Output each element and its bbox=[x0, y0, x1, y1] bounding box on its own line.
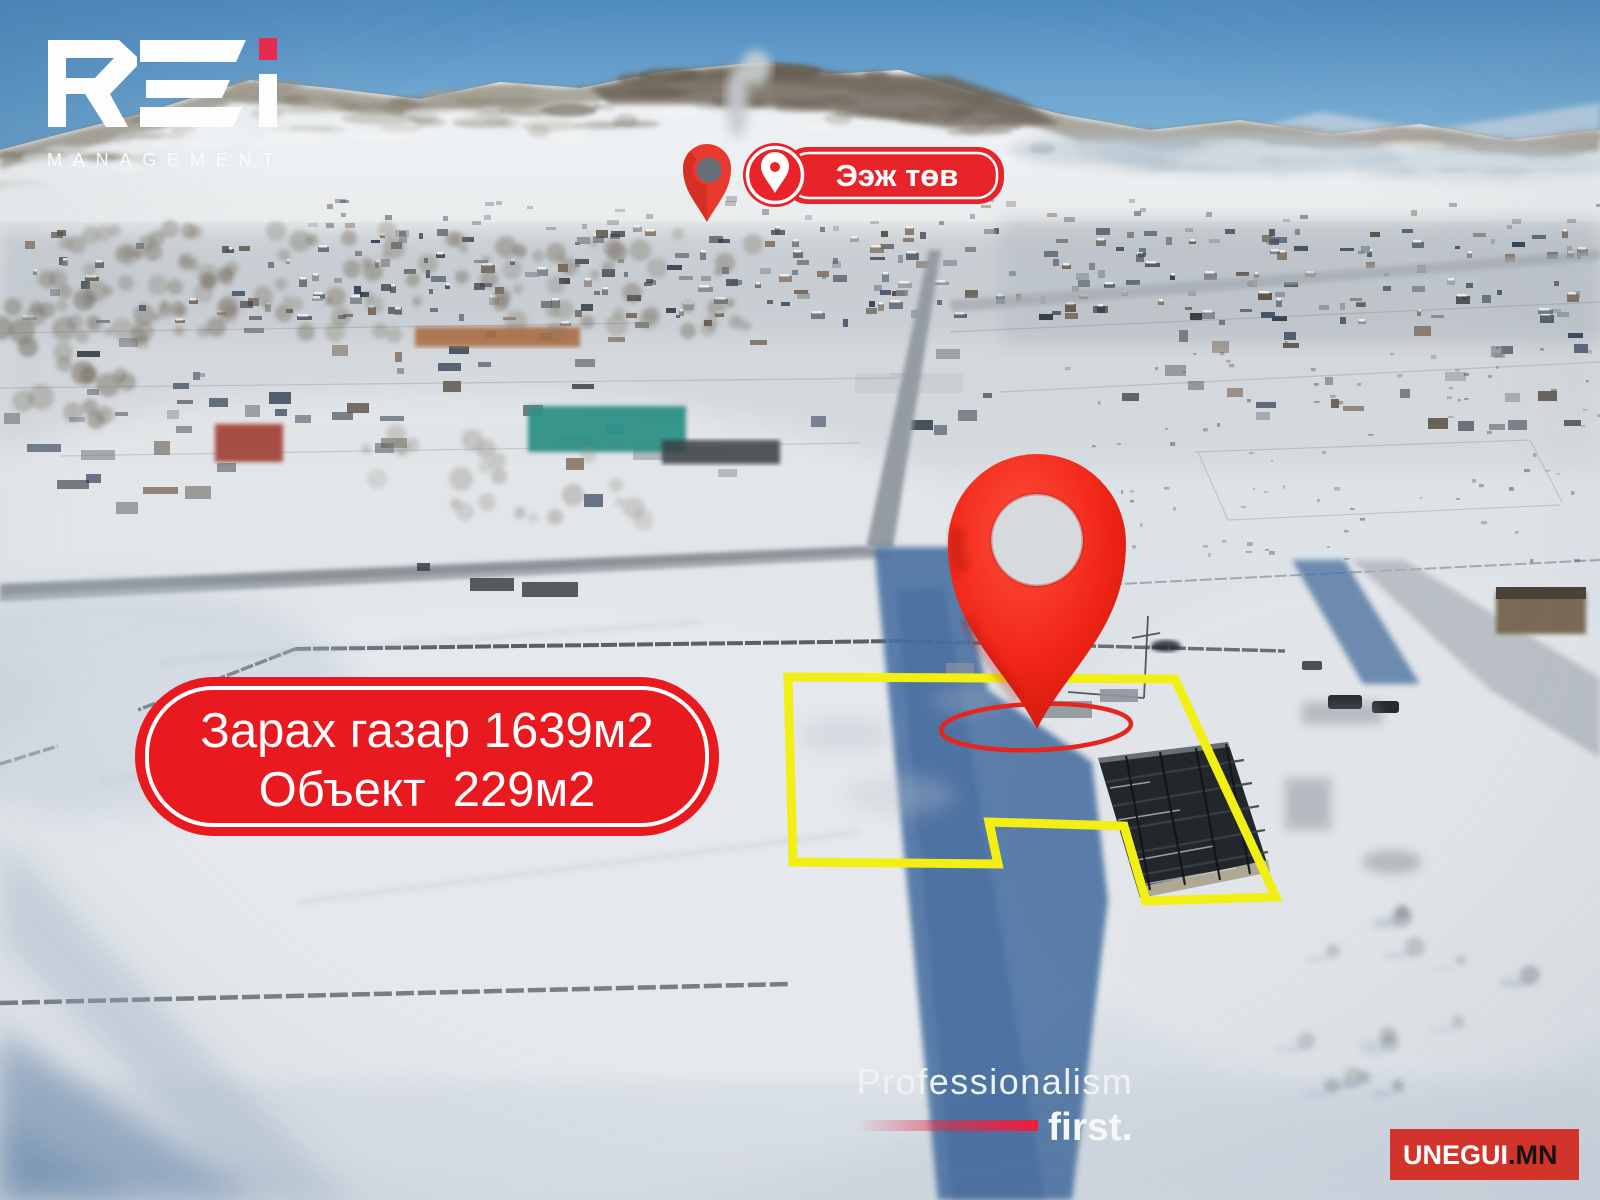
svg-text:UNEGUI.MN: UNEGUI.MN bbox=[1403, 1140, 1558, 1170]
svg-text:Объект 229м2: Объект 229м2 bbox=[259, 763, 596, 817]
svg-text:Professionalism: Professionalism bbox=[857, 1061, 1134, 1102]
svg-text:first.: first. bbox=[1048, 1106, 1133, 1149]
svg-text:MANAGEMENT: MANAGEMENT bbox=[47, 150, 284, 170]
svg-text:Ээж төв: Ээж төв bbox=[836, 158, 959, 193]
svg-text:Зарах газар 1639м2: Зарах газар 1639м2 bbox=[200, 704, 654, 758]
